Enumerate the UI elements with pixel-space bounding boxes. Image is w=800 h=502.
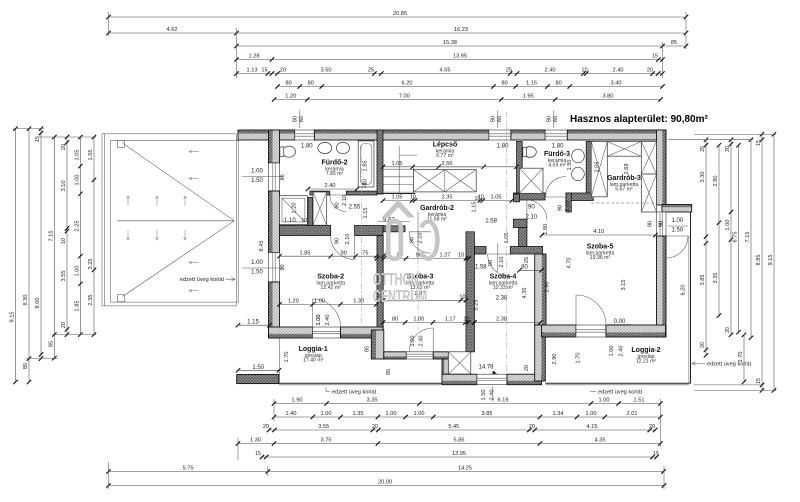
- svg-text:5.75: 5.75: [183, 466, 194, 472]
- svg-text:edzett üveg korlát: edzett üveg korlát: [598, 389, 643, 395]
- svg-text:1.00: 1.00: [314, 299, 325, 305]
- svg-text:80: 80: [293, 116, 299, 122]
- svg-text:1.00: 1.00: [413, 317, 424, 323]
- svg-text:2.90: 2.90: [552, 354, 558, 365]
- svg-text:1.55: 1.55: [88, 150, 94, 161]
- svg-text:20: 20: [529, 424, 535, 430]
- svg-text:7.85 m²: 7.85 m²: [326, 171, 344, 177]
- svg-text:1.00: 1.00: [599, 398, 610, 404]
- svg-text:1.00: 1.00: [251, 260, 263, 266]
- svg-text:1.15: 1.15: [526, 81, 537, 87]
- svg-text:1.00: 1.00: [386, 411, 397, 417]
- svg-text:80: 80: [392, 317, 398, 323]
- svg-text:1.70: 1.70: [576, 353, 582, 364]
- svg-text:1.70: 1.70: [284, 352, 290, 363]
- svg-text:90: 90: [659, 221, 665, 227]
- svg-text:2.01: 2.01: [627, 411, 638, 417]
- svg-text:1.17: 1.17: [445, 317, 456, 323]
- svg-text:20: 20: [725, 146, 731, 152]
- svg-text:90: 90: [488, 260, 494, 266]
- svg-text:13.95: 13.95: [453, 54, 467, 60]
- svg-text:3.85: 3.85: [482, 411, 493, 417]
- svg-text:2.25: 2.25: [74, 221, 80, 232]
- svg-text:2.10: 2.10: [342, 195, 348, 206]
- svg-text:1.27: 1.27: [439, 253, 450, 259]
- svg-text:1.85: 1.85: [74, 301, 80, 312]
- svg-text:20: 20: [263, 424, 269, 430]
- svg-text:1.85: 1.85: [363, 161, 369, 172]
- svg-text:90: 90: [528, 204, 535, 210]
- svg-text:1.15: 1.15: [472, 202, 478, 213]
- svg-text:10: 10: [463, 317, 469, 323]
- svg-text:3.30: 3.30: [700, 172, 706, 183]
- svg-text:80: 80: [285, 81, 291, 87]
- svg-text:85: 85: [48, 341, 54, 347]
- svg-text:1.40: 1.40: [286, 411, 297, 417]
- svg-text:16.23: 16.23: [454, 27, 468, 33]
- svg-text:4.70: 4.70: [567, 258, 573, 269]
- svg-text:12.21 m²: 12.21 m²: [636, 359, 657, 365]
- svg-text:1.51: 1.51: [634, 398, 645, 404]
- svg-text:4.35: 4.35: [595, 438, 606, 444]
- svg-text:8.30: 8.30: [23, 295, 29, 306]
- svg-text:2.10: 2.10: [565, 201, 571, 212]
- svg-text:10: 10: [459, 295, 465, 301]
- svg-text:7.15: 7.15: [48, 231, 54, 242]
- svg-text:4.10: 4.10: [593, 229, 604, 235]
- svg-text:3.40: 3.40: [611, 81, 622, 87]
- svg-text:2.40: 2.40: [613, 68, 624, 74]
- svg-text:15: 15: [255, 451, 261, 457]
- svg-text:3.75: 3.75: [321, 438, 332, 444]
- svg-text:20.00: 20.00: [378, 480, 392, 486]
- svg-text:2.40: 2.40: [325, 183, 336, 189]
- svg-text:25: 25: [506, 68, 512, 74]
- svg-text:1.28: 1.28: [249, 54, 260, 60]
- svg-text:80: 80: [547, 116, 553, 122]
- svg-text:2.10: 2.10: [526, 215, 538, 221]
- svg-text:3.15: 3.15: [621, 280, 627, 291]
- svg-text:25: 25: [368, 68, 374, 74]
- svg-text:1.00: 1.00: [725, 220, 731, 231]
- svg-text:3.35: 3.35: [713, 273, 719, 284]
- svg-text:2.10: 2.10: [345, 234, 351, 245]
- svg-text:3.55: 3.55: [61, 271, 67, 282]
- svg-text:20: 20: [61, 144, 67, 150]
- svg-text:12.42 m²: 12.42 m²: [320, 285, 341, 291]
- svg-text:1.00: 1.00: [74, 266, 80, 277]
- svg-text:1.00: 1.00: [414, 411, 425, 417]
- svg-text:8.45: 8.45: [259, 241, 265, 252]
- svg-text:90: 90: [341, 250, 347, 256]
- svg-text:6.19: 6.19: [498, 398, 509, 404]
- svg-text:edzett üveg korlát: edzett üveg korlát: [707, 362, 752, 368]
- svg-text:1.15: 1.15: [363, 208, 369, 219]
- svg-text:10: 10: [581, 68, 587, 74]
- svg-text:90: 90: [558, 205, 564, 211]
- svg-text:5.85: 5.85: [454, 438, 465, 444]
- svg-text:20: 20: [700, 146, 706, 152]
- svg-text:3.85: 3.85: [700, 275, 706, 286]
- svg-text:19.96 m²: 19.96 m²: [590, 255, 611, 261]
- svg-text:80: 80: [491, 116, 497, 122]
- svg-text:1.15: 1.15: [247, 319, 259, 325]
- svg-text:1.00: 1.00: [316, 315, 322, 326]
- svg-text:10: 10: [458, 253, 464, 259]
- svg-text:1.20: 1.20: [285, 94, 296, 100]
- svg-text:80: 80: [521, 264, 528, 270]
- svg-text:1.58: 1.58: [475, 264, 487, 270]
- svg-text:90: 90: [280, 174, 286, 180]
- svg-text:10.33 m²: 10.33 m²: [493, 285, 514, 291]
- svg-text:2.69: 2.69: [624, 164, 630, 175]
- svg-text:1.50: 1.50: [251, 270, 263, 276]
- svg-text:7.00: 7.00: [399, 94, 410, 100]
- svg-text:3.25: 3.25: [88, 259, 94, 270]
- svg-text:20: 20: [700, 342, 706, 348]
- svg-text:1.00: 1.00: [410, 336, 416, 347]
- svg-text:10: 10: [475, 196, 481, 202]
- svg-text:2.05: 2.05: [595, 162, 601, 173]
- svg-text:8.00: 8.00: [35, 298, 41, 309]
- svg-text:85: 85: [365, 346, 371, 352]
- svg-text:1.05: 1.05: [74, 150, 80, 161]
- svg-text:1.05: 1.05: [392, 161, 403, 167]
- svg-text:10: 10: [301, 218, 307, 224]
- svg-text:10: 10: [61, 238, 67, 244]
- svg-text:3.35: 3.35: [367, 398, 378, 404]
- svg-text:6.20: 6.20: [680, 285, 686, 296]
- svg-text:15: 15: [756, 378, 762, 384]
- svg-text:2.35: 2.35: [442, 195, 453, 201]
- svg-text:2.38: 2.38: [496, 317, 507, 323]
- svg-text:1.58: 1.58: [485, 218, 497, 224]
- svg-text:1.95: 1.95: [523, 94, 534, 100]
- svg-text:90: 90: [335, 202, 341, 208]
- svg-text:0.00: 0.00: [614, 319, 626, 325]
- svg-text:Hasznos alapterület: 90,80m²: Hasznos alapterület: 90,80m²: [570, 114, 708, 125]
- svg-text:9.15: 9.15: [768, 255, 774, 266]
- svg-text:20.85: 20.85: [393, 11, 407, 17]
- svg-text:17.40 m²: 17.40 m²: [303, 358, 324, 364]
- svg-text:14.25: 14.25: [458, 466, 472, 472]
- svg-text:4.35: 4.35: [522, 288, 528, 299]
- svg-text:4.59 m²: 4.59 m²: [548, 163, 566, 169]
- svg-text:6.77 m²: 6.77 m²: [436, 153, 454, 159]
- svg-text:1.10: 1.10: [284, 218, 296, 224]
- svg-text:1.00: 1.00: [251, 169, 263, 175]
- svg-text:15.38: 15.38: [443, 40, 457, 46]
- svg-text:CENTRUM: CENTRUM: [373, 288, 427, 307]
- svg-text:2.56: 2.56: [442, 161, 453, 167]
- svg-text:2.10: 2.10: [499, 257, 505, 268]
- svg-text:1.90: 1.90: [292, 398, 303, 404]
- svg-text:1.30: 1.30: [250, 438, 261, 444]
- svg-text:3.55: 3.55: [318, 424, 329, 430]
- svg-text:6.20: 6.20: [402, 81, 413, 87]
- svg-text:1.13: 1.13: [247, 68, 258, 74]
- svg-text:2.40: 2.40: [545, 68, 556, 74]
- svg-text:15: 15: [653, 451, 659, 457]
- svg-text:6.75: 6.75: [732, 232, 738, 243]
- svg-text:85: 85: [23, 363, 29, 369]
- svg-text:15: 15: [261, 68, 267, 74]
- svg-text:2.40: 2.40: [490, 390, 496, 401]
- svg-text:20: 20: [647, 68, 653, 74]
- svg-text:2.40: 2.40: [325, 315, 331, 326]
- svg-text:80: 80: [501, 81, 507, 87]
- svg-text:1.30: 1.30: [353, 299, 364, 305]
- svg-text:4.65: 4.65: [440, 68, 451, 74]
- svg-text:14.78: 14.78: [478, 365, 494, 371]
- svg-text:15: 15: [756, 140, 762, 146]
- svg-text:10: 10: [410, 195, 416, 201]
- svg-text:1.00: 1.00: [609, 346, 615, 357]
- svg-text:4.62: 4.62: [167, 27, 178, 33]
- svg-text:edzett üveg korlát: edzett üveg korlát: [180, 277, 225, 283]
- svg-text:2.40: 2.40: [419, 336, 425, 347]
- svg-text:80: 80: [555, 81, 561, 87]
- svg-text:1.50: 1.50: [251, 178, 263, 184]
- svg-text:20: 20: [280, 68, 286, 74]
- svg-text:8.85: 8.85: [756, 255, 762, 266]
- svg-text:edzett üveg korlát: edzett üveg korlát: [332, 389, 377, 395]
- svg-text:85: 85: [386, 369, 392, 375]
- svg-text:1.00: 1.00: [321, 411, 332, 417]
- svg-text:7.15: 7.15: [745, 232, 751, 243]
- svg-text:1.34: 1.34: [553, 411, 564, 417]
- svg-text:1.50: 1.50: [252, 365, 264, 371]
- svg-text:2.10: 2.10: [418, 233, 424, 244]
- svg-text:1.35: 1.35: [353, 411, 364, 417]
- svg-text:90: 90: [335, 238, 341, 244]
- svg-text:1.20: 1.20: [288, 299, 299, 305]
- svg-text:1.00: 1.00: [74, 175, 80, 186]
- svg-text:9.15: 9.15: [10, 312, 16, 323]
- svg-text:90: 90: [409, 237, 415, 243]
- svg-text:5.25: 5.25: [474, 300, 480, 311]
- svg-text:3.10: 3.10: [61, 181, 67, 192]
- svg-text:13.95: 13.95: [452, 451, 466, 457]
- svg-text:1.80: 1.80: [552, 144, 564, 150]
- svg-text:2.55: 2.55: [349, 205, 361, 211]
- svg-text:85: 85: [671, 40, 677, 46]
- svg-text:3.80: 3.80: [602, 94, 613, 100]
- svg-text:25: 25: [524, 257, 530, 263]
- svg-text:1.80: 1.80: [497, 144, 509, 150]
- svg-text:1.05: 1.05: [392, 195, 403, 201]
- svg-text:2.35: 2.35: [88, 295, 94, 306]
- svg-text:1.50: 1.50: [481, 390, 487, 401]
- svg-text:15: 15: [652, 54, 658, 60]
- svg-text:75: 75: [362, 250, 368, 256]
- svg-text:1.00: 1.00: [586, 411, 597, 417]
- svg-text:2.80: 2.80: [713, 176, 719, 187]
- svg-text:90: 90: [647, 221, 653, 227]
- svg-text:2.90: 2.90: [545, 282, 551, 293]
- svg-text:20: 20: [61, 322, 67, 328]
- svg-text:20: 20: [649, 424, 655, 430]
- svg-text:20: 20: [372, 424, 378, 430]
- svg-text:5.45: 5.45: [448, 424, 459, 430]
- svg-text:5.67 m²: 5.67 m²: [615, 187, 633, 193]
- svg-text:20: 20: [725, 327, 731, 333]
- svg-text:1.20: 1.20: [292, 203, 298, 214]
- svg-text:90: 90: [280, 264, 286, 270]
- svg-text:2.38: 2.38: [496, 295, 508, 301]
- svg-text:80: 80: [308, 81, 314, 87]
- svg-text:1.05: 1.05: [491, 195, 502, 201]
- svg-text:1.95: 1.95: [567, 160, 573, 171]
- svg-text:1.85: 1.85: [300, 250, 311, 256]
- svg-text:3.50: 3.50: [321, 68, 332, 74]
- svg-text:1.80: 1.80: [301, 144, 313, 150]
- svg-text:20: 20: [524, 365, 530, 371]
- svg-text:1.50: 1.50: [672, 228, 684, 234]
- svg-text:2.40: 2.40: [618, 346, 624, 357]
- svg-text:1.00: 1.00: [672, 218, 684, 224]
- svg-text:10: 10: [362, 182, 368, 188]
- svg-text:4.15: 4.15: [587, 424, 598, 430]
